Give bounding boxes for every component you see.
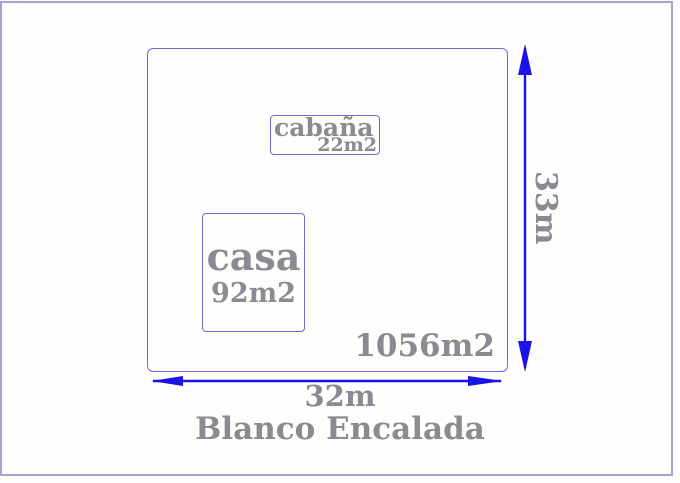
cabana-area-label: 22m2 (317, 135, 377, 156)
casa-room: casa 92m2 (202, 213, 305, 332)
height-dimension-label: 33m (530, 171, 560, 245)
site-title: Blanco Encalada (140, 412, 540, 446)
lot-area-label: 1056m2 (354, 331, 495, 362)
casa-name-label: casa (207, 238, 301, 276)
cabana-room: cabaña 22m2 (270, 115, 380, 155)
casa-area-label: 92m2 (211, 280, 296, 307)
lot-plan-diagram: cabaña 22m2 casa 92m2 1056m2 33m 32m Bla… (0, 0, 680, 483)
width-dimension-label: 32m (280, 381, 400, 413)
